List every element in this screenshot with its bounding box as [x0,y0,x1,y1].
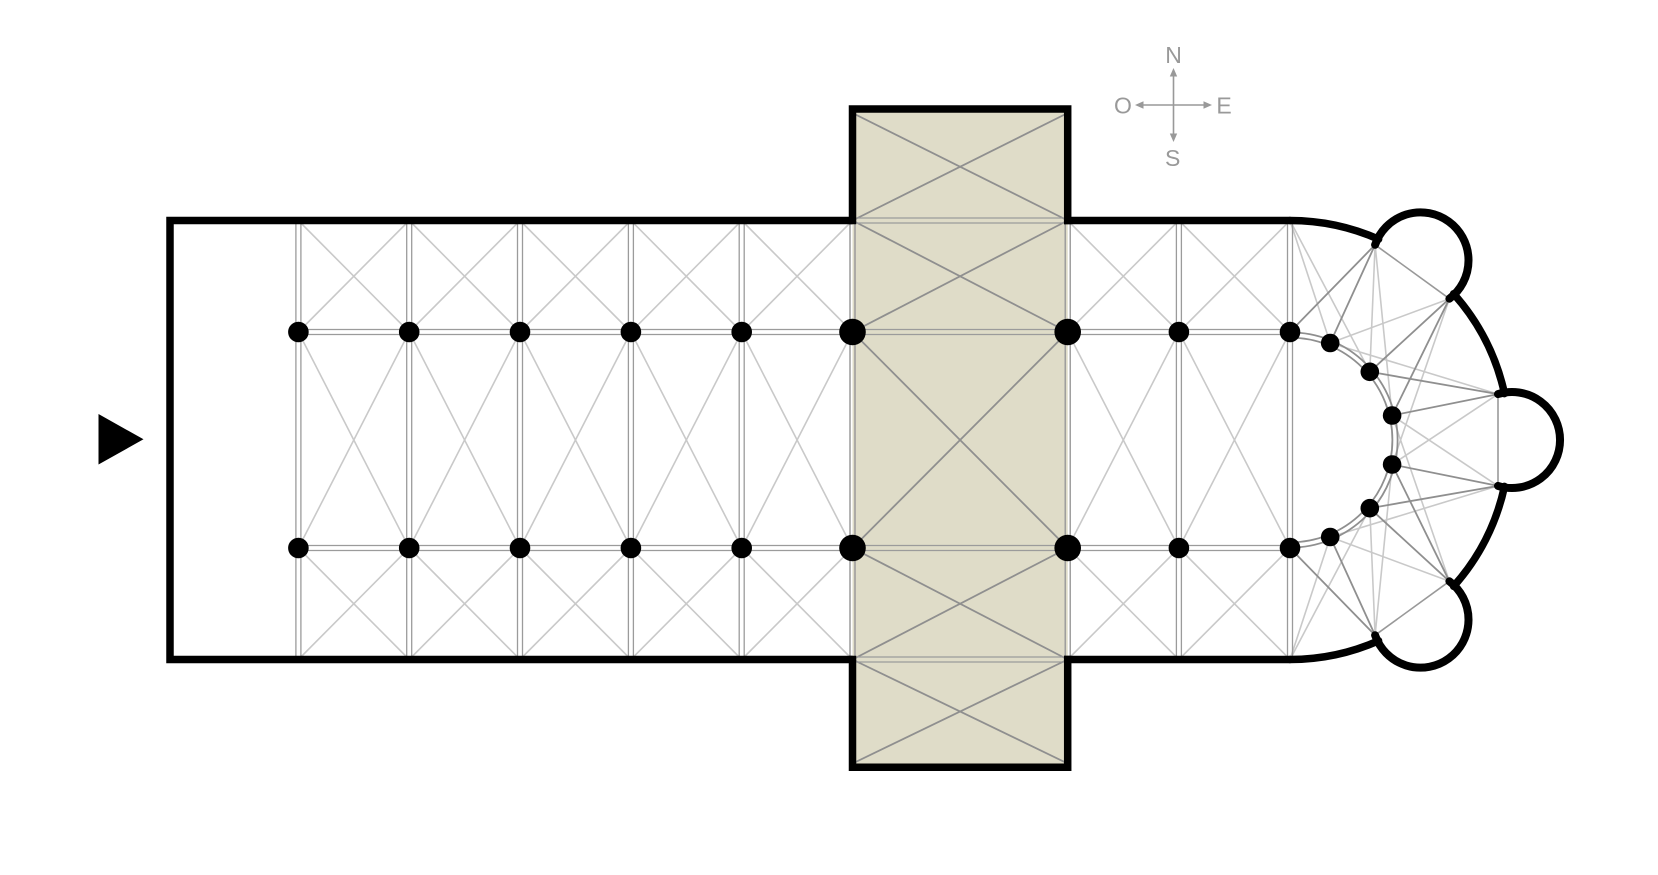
svg-text:S: S [1165,145,1180,171]
svg-text:O: O [1114,93,1132,119]
svg-text:N: N [1165,42,1182,68]
svg-text:E: E [1216,93,1231,119]
